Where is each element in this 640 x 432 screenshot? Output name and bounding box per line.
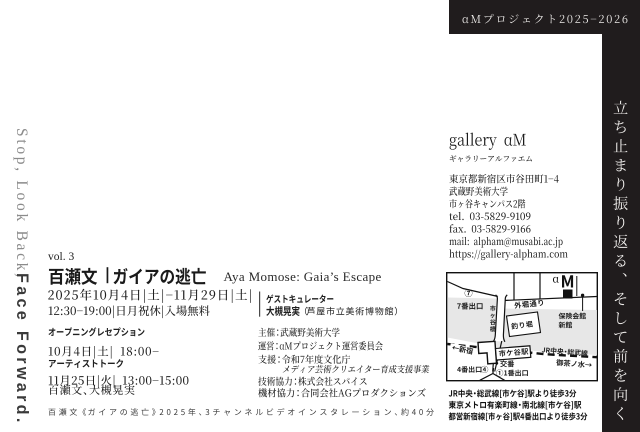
svg-text:Aya Momose: Gaia’s Escape: Aya Momose: Gaia’s Escape bbox=[224, 269, 382, 284]
svg-text:Face Forward.: Face Forward. bbox=[13, 273, 31, 426]
svg-text:Stop, Look Back,: Stop, Look Back, bbox=[13, 128, 30, 280]
svg-text:vol. 3: vol. 3 bbox=[48, 251, 74, 263]
